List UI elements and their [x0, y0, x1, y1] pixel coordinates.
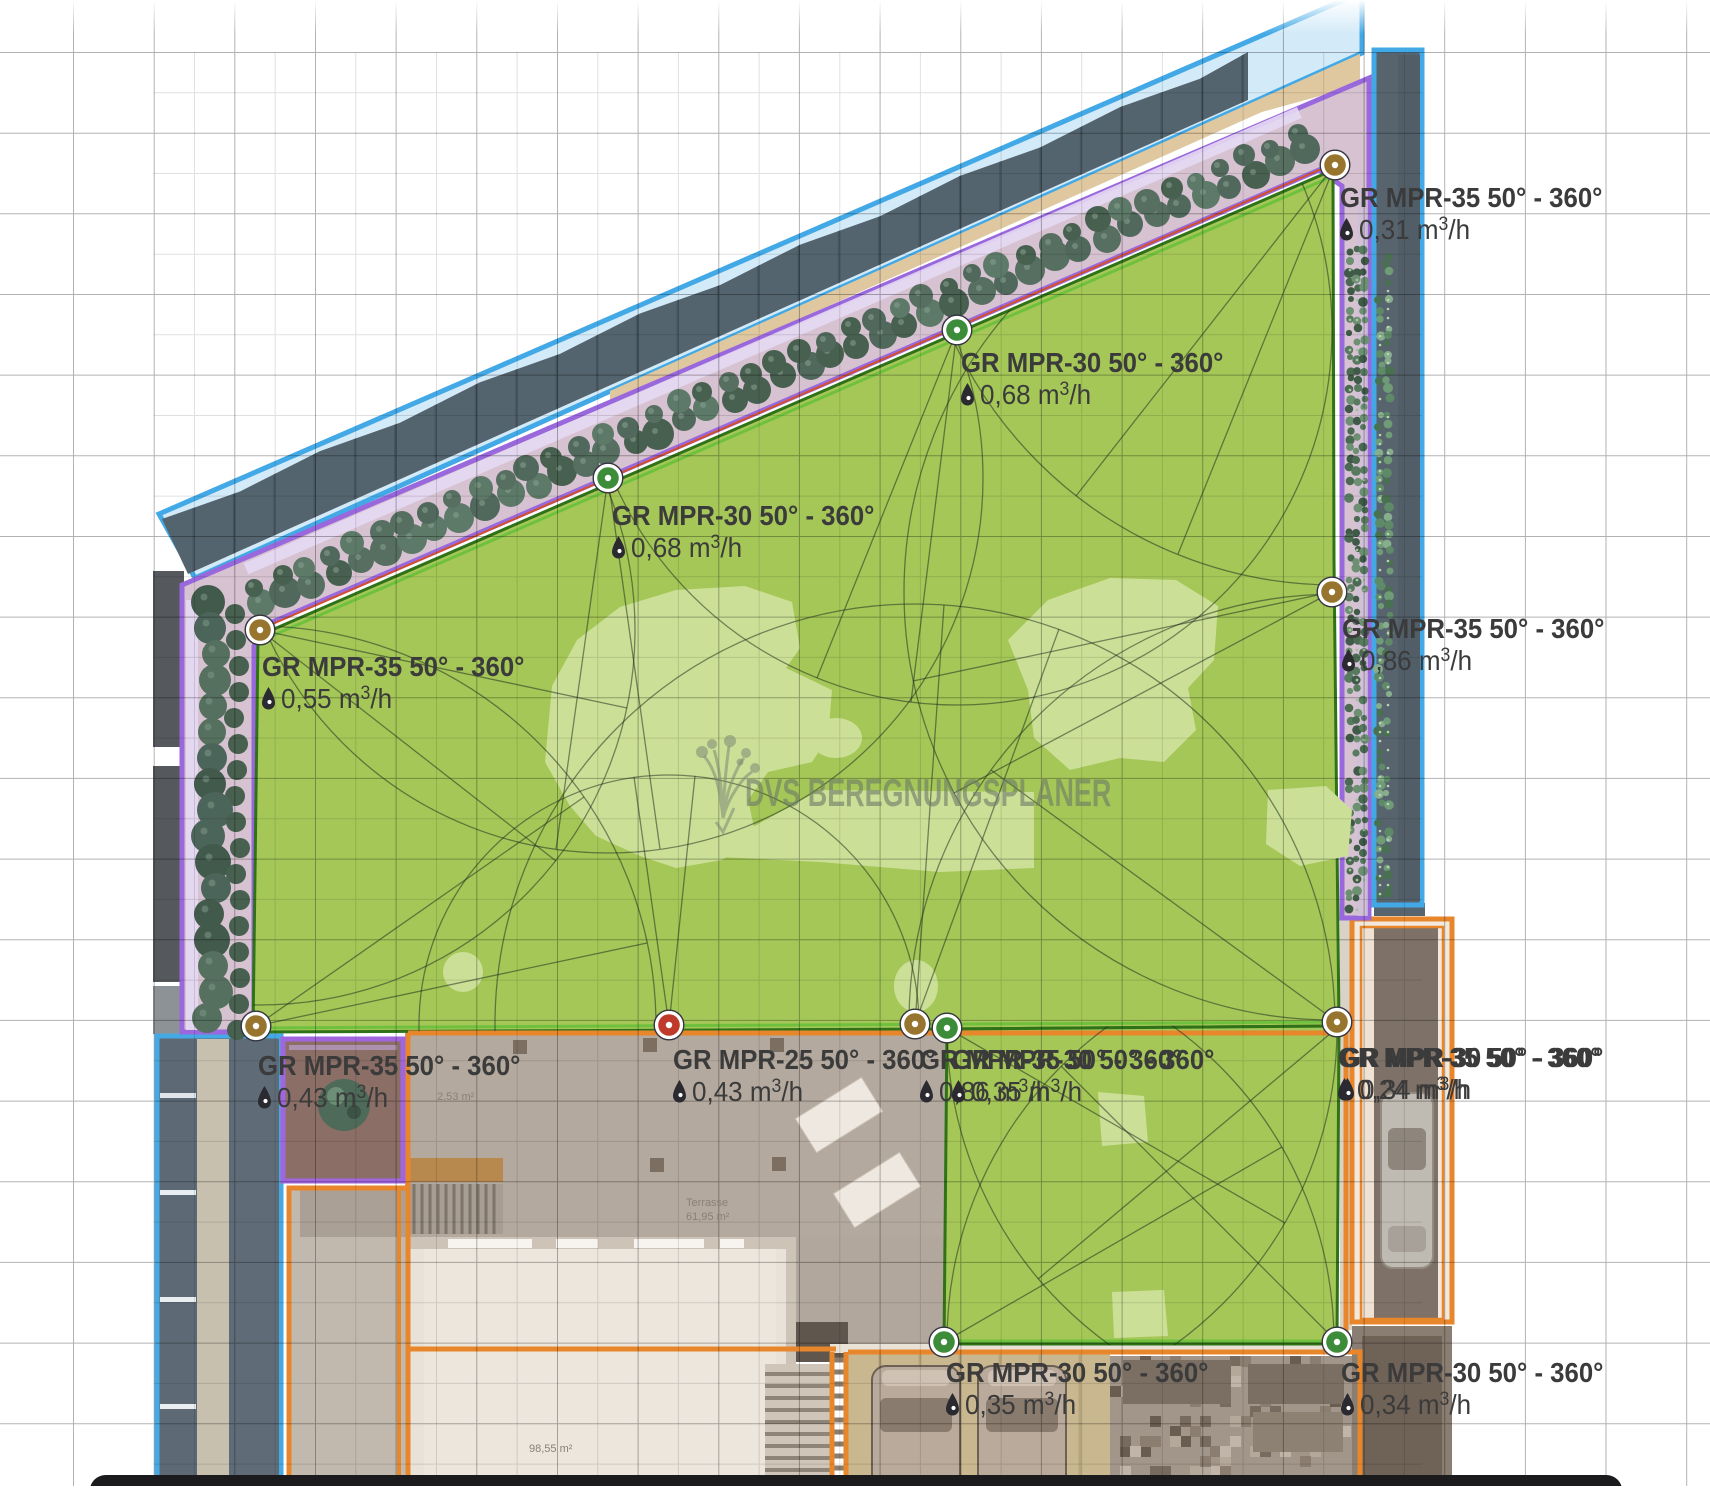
svg-text:GR MPR-35 50° - 360°: GR MPR-35 50° - 360°: [1340, 182, 1602, 213]
svg-text:GR MPR-35 50° - 360°: GR MPR-35 50° - 360°: [1342, 613, 1604, 644]
svg-text:GR MPR-30 50° - 360°: GR MPR-30 50° - 360°: [612, 500, 874, 531]
svg-text:0,86 m3/h: 0,86 m3/h: [1361, 643, 1472, 676]
svg-text:0,35 m3/h: 0,35 m3/h: [965, 1387, 1076, 1420]
svg-text:0,43 m3/h: 0,43 m3/h: [692, 1074, 803, 1107]
svg-text:Terrasse: Terrasse: [686, 1197, 728, 1209]
svg-text:DVS BEREGNUNGSPLANER: DVS BEREGNUNGSPLANER: [745, 772, 1111, 815]
svg-text:GR MPR-30 50° - 360°: GR MPR-30 50° - 360°: [961, 347, 1223, 378]
svg-text:0,55 m3/h: 0,55 m3/h: [281, 681, 392, 714]
svg-text:0,34 m3/h: 0,34 m3/h: [1360, 1387, 1471, 1420]
svg-text:0,34 m3/h: 0,34 m3/h: [1360, 1072, 1471, 1105]
svg-text:GR MPR-30 50° - 360°: GR MPR-30 50° - 360°: [946, 1357, 1208, 1388]
svg-text:GR MPR-30 50° - 360°: GR MPR-30 50° - 360°: [1341, 1357, 1603, 1388]
svg-text:GR MPR-30 50° - 360°: GR MPR-30 50° - 360°: [1341, 1042, 1603, 1073]
svg-text:2,53 m²: 2,53 m²: [437, 1091, 475, 1103]
svg-text:0,31 m3/h: 0,31 m3/h: [1359, 212, 1470, 245]
svg-text:0,43 m3/h: 0,43 m3/h: [277, 1080, 388, 1113]
svg-text:GR MPR-35 50° - 360°: GR MPR-35 50° - 360°: [262, 651, 524, 682]
svg-text:61,95 m²: 61,95 m²: [686, 1211, 730, 1223]
svg-text:98,55 m²: 98,55 m²: [529, 1443, 573, 1455]
svg-text:GR MPR-30 50° - 360°: GR MPR-30 50° - 360°: [952, 1044, 1214, 1075]
svg-text:GR MPR-35 50° - 360°: GR MPR-35 50° - 360°: [258, 1050, 520, 1081]
svg-text:0,68 m3/h: 0,68 m3/h: [631, 530, 742, 563]
svg-text:0,68 m3/h: 0,68 m3/h: [980, 377, 1091, 410]
svg-text:GR MPR-25 50° - 360°: GR MPR-25 50° - 360°: [673, 1044, 935, 1075]
svg-text:0,35 m3/h: 0,35 m3/h: [971, 1074, 1082, 1107]
